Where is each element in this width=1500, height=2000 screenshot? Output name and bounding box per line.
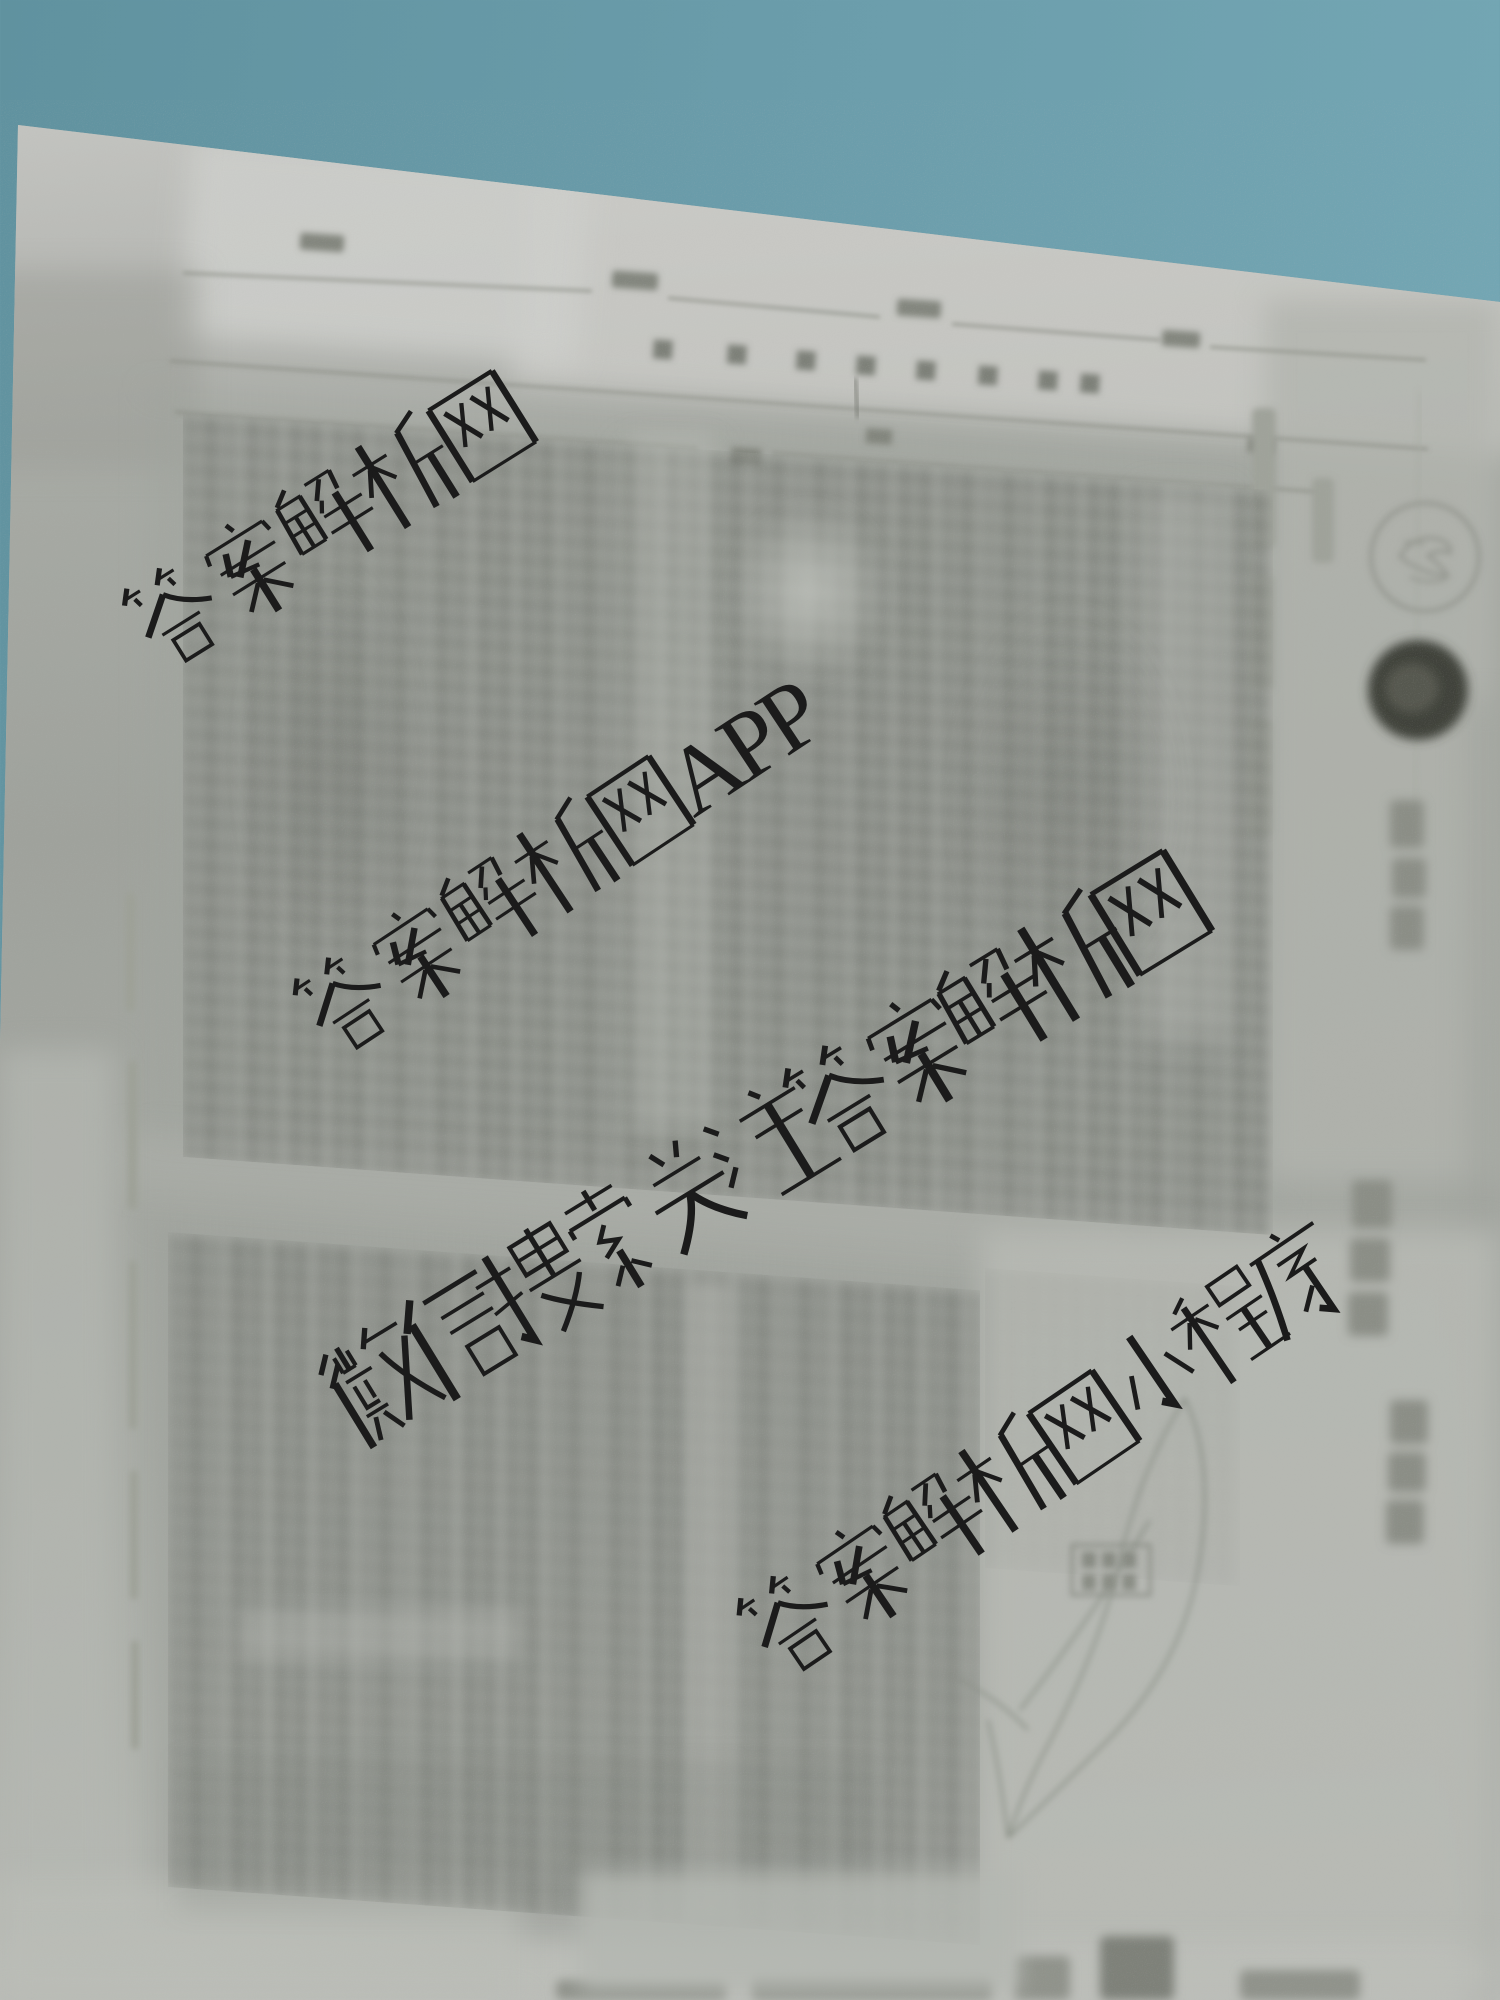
svg-text:APP: APP — [646, 658, 839, 836]
